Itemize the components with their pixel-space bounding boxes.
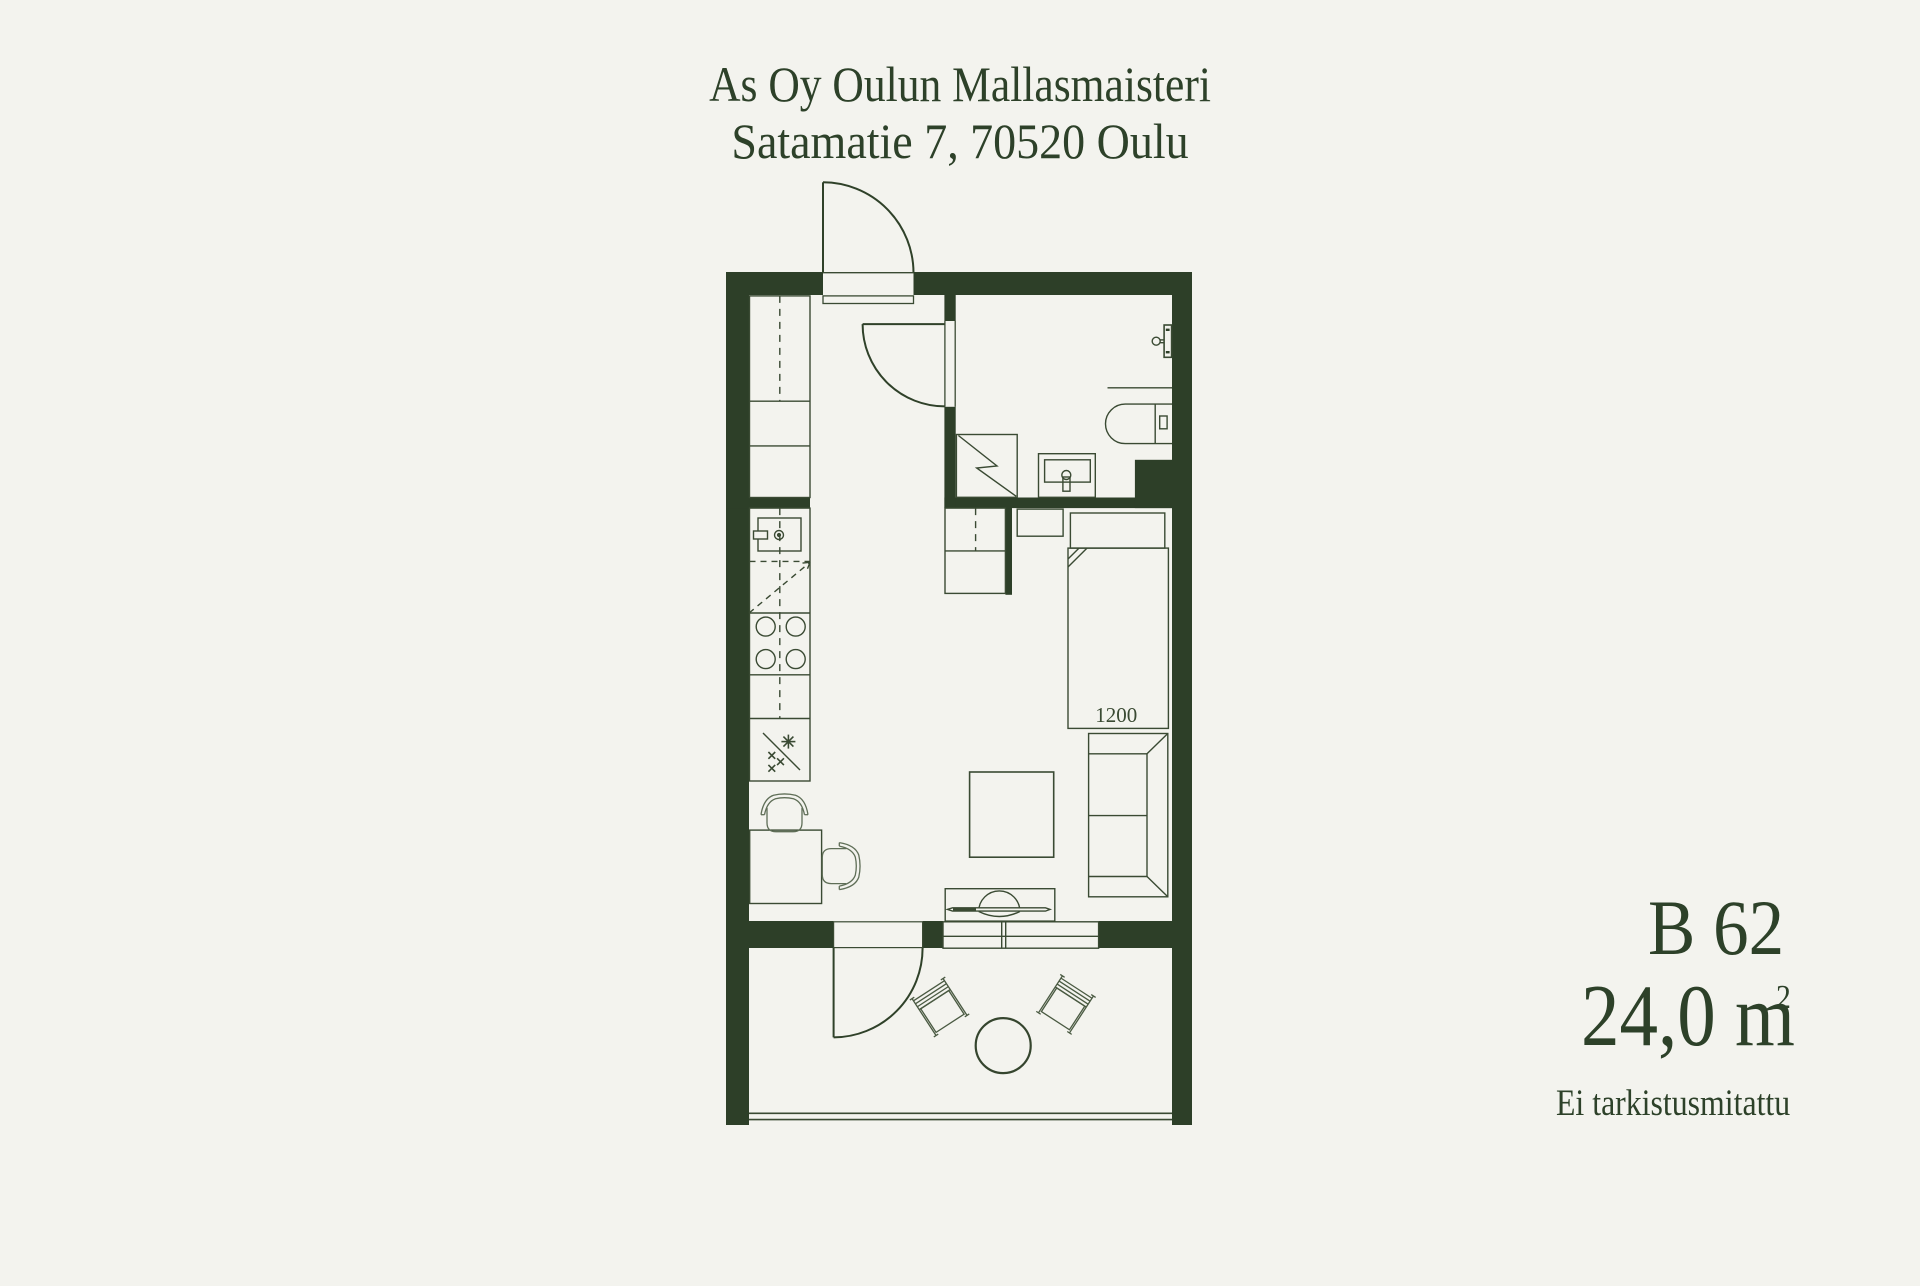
svg-text:Ei tarkistusmitattu: Ei tarkistusmitattu [1556,1083,1790,1124]
svg-text:2: 2 [1776,978,1791,1015]
svg-text:Satamatie 7, 70520 Oulu: Satamatie 7, 70520 Oulu [731,114,1188,169]
svg-text:1200: 1200 [1095,703,1137,727]
svg-text:As Oy Oulun Mallasmaisteri: As Oy Oulun Mallasmaisteri [709,57,1211,112]
svg-text:24,0 m: 24,0 m [1581,966,1795,1064]
svg-text:B 62: B 62 [1648,886,1784,972]
